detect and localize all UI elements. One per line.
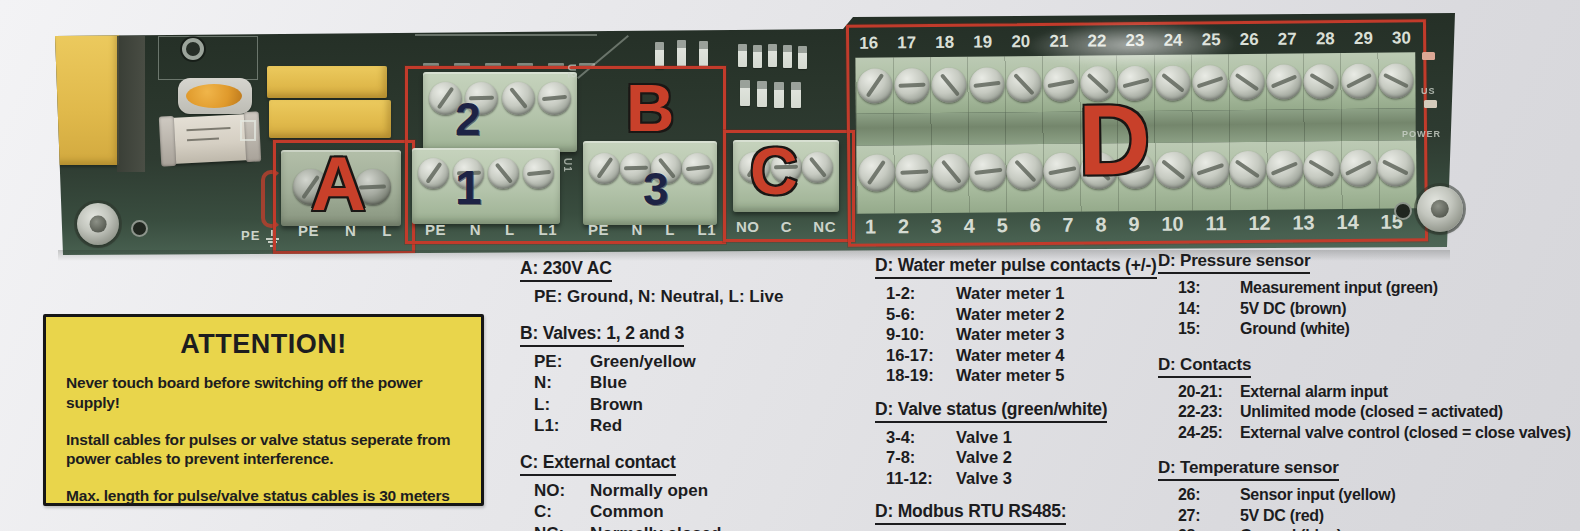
screw-terminal — [932, 67, 967, 102]
screw-terminal — [1229, 64, 1264, 99]
legend-section: D: Temperature sensor26:Sensor input (ye… — [1158, 458, 1580, 531]
attention-line-1: Never touch board before switching off t… — [66, 373, 461, 413]
legend-row-key: 11-12: — [886, 468, 956, 489]
screw-terminal — [682, 153, 713, 184]
screw-terminal — [1377, 149, 1414, 186]
smd-component — [677, 40, 686, 67]
fuse-marking — [187, 138, 219, 142]
legend-row: 1-2:Water meter 1 — [875, 283, 1167, 304]
legend-section-title: D: Valve status (green/white) — [875, 399, 1107, 423]
ref-designator-u2: U2 — [566, 64, 577, 79]
screw-terminal — [858, 154, 895, 191]
legend-row-value: Water meter 2 — [956, 304, 1065, 325]
legend-section: A: 230V ACPE: Ground, N: Neutral, L: Liv… — [520, 258, 870, 308]
legend-row-key: 3-4: — [886, 427, 956, 448]
legend-row: L1:Red — [520, 415, 870, 437]
legend-row: PE: Ground, N: Neutral, L: Live — [520, 286, 870, 308]
screw-terminal — [1341, 63, 1376, 98]
smd-component — [798, 46, 807, 69]
legend-section-title: C: External contact — [520, 452, 676, 476]
legend-section: D: Valve status (green/white)3-4:Valve 1… — [875, 399, 1167, 489]
fuse-marking — [186, 127, 230, 131]
legend-row-value: Ground (white) — [1240, 319, 1350, 340]
terminal-number: 4 — [964, 215, 975, 238]
terminal-number: 16 — [859, 33, 878, 53]
attention-line-2: Install cables for pulses or valve statu… — [66, 430, 461, 470]
terminal-label: C — [781, 218, 792, 235]
ref-designator-u1: U1 — [562, 158, 573, 173]
valve-block-number-3: 3 — [643, 166, 669, 212]
legend-row-key: NC: — [534, 523, 590, 531]
screw-terminal — [1267, 64, 1302, 99]
smd-component — [774, 82, 784, 108]
screw-terminal — [1043, 66, 1078, 101]
smd-component — [738, 44, 747, 67]
legend-row-value: Valve 2 — [956, 447, 1012, 468]
legend-row: PE:Green/yellow — [520, 351, 870, 373]
smd-component — [740, 80, 750, 106]
smd-component — [783, 45, 792, 68]
legend-row: 7-8:Valve 2 — [875, 447, 1167, 468]
modbus-led — [1424, 100, 1437, 108]
legend-row: N:Blue — [520, 372, 870, 394]
legend-row: 20-21:External alarm input — [1158, 382, 1580, 403]
legend-row-key: 20-21: — [1178, 382, 1240, 403]
terminal-number: 9 — [1128, 213, 1139, 236]
terminal-label: N — [345, 222, 356, 239]
relay-1 — [267, 66, 387, 98]
legend-row: 9-10:Water meter 3 — [875, 324, 1167, 345]
terminal-screws-b1 — [418, 156, 554, 190]
screw-terminal — [523, 158, 554, 189]
terminal-label: PE — [298, 222, 319, 239]
legend-row-value: Water meter 1 — [956, 283, 1065, 304]
smd-component — [791, 82, 801, 108]
legend-row-key: NO: — [534, 480, 590, 502]
screw-terminal — [1340, 149, 1377, 186]
legend-row-value: Brown — [590, 394, 643, 416]
legend-row: 16-17:Water meter 4 — [875, 345, 1167, 366]
legend-section-title: D: Contacts — [1158, 355, 1251, 378]
legend-row: NO:Normally open — [520, 480, 870, 502]
legend-row-key: 1-2: — [886, 283, 956, 304]
legend-row-value: Red — [590, 415, 622, 437]
legend-row-value: External alarm input — [1240, 382, 1388, 403]
legend-column-d-meters: D: Water meter pulse contacts (+/-)1-2:W… — [875, 255, 1167, 531]
legend-row-value: 5V DC (brown) — [1240, 299, 1346, 320]
legend-row-key: 5-6: — [886, 304, 956, 325]
section-label-d: D — [1078, 89, 1151, 190]
screw-terminal — [969, 153, 1006, 190]
terminal-number: 5 — [997, 214, 1008, 237]
screw-terminal — [1378, 63, 1413, 98]
legend-row-key: L: — [534, 394, 590, 416]
legend-row-value: Water meter 4 — [956, 345, 1065, 366]
legend-row-key: C: — [534, 501, 590, 523]
terminal-number: 17 — [897, 33, 916, 53]
silkscreen-box-icon — [240, 120, 256, 141]
legend-row-key: 26: — [1178, 485, 1240, 506]
legend-row: 28:Ground (blue) — [1158, 526, 1580, 531]
legend-row-value: Ground (blue) — [1240, 526, 1342, 531]
legend-row: L:Brown — [520, 394, 870, 416]
terminal-number: 28 — [1316, 29, 1335, 49]
status-led — [1422, 52, 1435, 60]
legend-row-value: Common — [590, 501, 664, 523]
section-d-outline: 161718192021222324252627282930 123456789… — [846, 19, 1428, 247]
legend-row-value: Valve 3 — [956, 468, 1012, 489]
screw-terminal — [802, 152, 833, 183]
component-shadow — [117, 36, 145, 172]
terminal-number: 11 — [1205, 212, 1226, 235]
screw-terminal — [1043, 152, 1080, 189]
silkscreen-outline — [158, 36, 258, 80]
legend-section: B: Valves: 1, 2 and 3PE:Green/yellowN:Bl… — [520, 323, 870, 437]
legend-column-d-sensors: D: Pressure sensor13:Measurement input (… — [1158, 251, 1580, 531]
legend-row-value: PE: Ground, N: Neutral, L: Live — [534, 286, 783, 308]
legend-row: 27:5V DC (red) — [1158, 506, 1580, 527]
legend-row-key: 28: — [1178, 526, 1240, 531]
smd-component — [757, 81, 767, 107]
small-hole — [131, 220, 148, 237]
legend-row-value: Measurement input (green) — [1240, 278, 1438, 299]
terminal-labels-a: PENL — [298, 222, 392, 239]
smd-component — [699, 41, 708, 68]
legend-row-key: L1: — [534, 415, 590, 437]
legend-row: 5-6:Water meter 2 — [875, 304, 1167, 325]
terminal-number: 18 — [935, 33, 954, 53]
screw-terminal — [1266, 150, 1303, 187]
legend-row-value: Normally open — [590, 480, 708, 502]
terminal-number: 19 — [973, 32, 992, 52]
legend-row-value: Water meter 3 — [956, 324, 1065, 345]
legend-row-key: 18-19: — [886, 365, 956, 386]
terminal-label: L — [505, 221, 515, 238]
terminal-number: 1 — [865, 216, 876, 239]
legend-row-key: 13: — [1178, 278, 1240, 299]
terminal-label: NC — [813, 218, 836, 235]
valve-block-number-1: 1 — [455, 164, 482, 212]
legend-row-key: 22-23: — [1178, 402, 1240, 423]
legend-section-title: B: Valves: 1, 2 and 3 — [520, 323, 684, 347]
legend-row-key: 7-8: — [886, 447, 956, 468]
screw-terminal — [1006, 152, 1043, 189]
mount-screw-left — [77, 203, 119, 245]
legend-row: 11-12:Valve 3 — [875, 468, 1167, 489]
screw-terminal — [1192, 151, 1229, 188]
terminal-labels-b3: PENLL1 — [588, 221, 716, 238]
legend-row-value: Sensor input (yellow) — [1240, 485, 1396, 506]
photo-glare — [1024, 20, 1239, 70]
legend-row-value: Blue — [590, 372, 627, 394]
legend-row: C:Common — [520, 501, 870, 523]
terminal-label: L1 — [538, 221, 557, 238]
screw-terminal — [1006, 66, 1041, 101]
legend-row-value: 5V DC (red) — [1240, 506, 1324, 527]
valve-block-number-2: 2 — [455, 96, 481, 142]
manual-page: PE A PENL 2 1 3 B PENLL1 PENLL1 U2 U1 — [0, 0, 1580, 531]
transformer-component — [55, 33, 119, 165]
attention-line-3: Max. length for pulse/valve status cable… — [66, 486, 461, 506]
section-label-b: B — [626, 74, 674, 141]
legend-row-key: 14: — [1178, 299, 1240, 320]
legend-row-value: Normally closed — [590, 523, 721, 531]
legend-row-key: N: — [534, 372, 590, 394]
smd-component — [655, 42, 664, 69]
legend-row: 18-19:Water meter 5 — [875, 365, 1167, 386]
legend-section-title: D: Water meter pulse contacts (+/-) — [875, 255, 1157, 279]
smd-component — [753, 45, 762, 68]
screw-terminal — [969, 67, 1004, 102]
attention-title: ATTENTION! — [66, 329, 461, 360]
legend-section: D: Water meter pulse contacts (+/-)1-2:W… — [875, 255, 1167, 386]
terminal-number: 13 — [1292, 211, 1314, 234]
terminal-labels-c: NOCNC — [736, 218, 836, 235]
terminal-label: L1 — [697, 221, 716, 238]
screw-terminal — [502, 82, 535, 115]
terminal-label: N — [632, 221, 643, 238]
screw-terminal — [418, 158, 449, 189]
terminal-label: L — [665, 221, 675, 238]
terminal-number: 14 — [1336, 211, 1358, 234]
screw-terminal — [1155, 151, 1192, 188]
legend-row-key: 15: — [1178, 319, 1240, 340]
terminal-number: 29 — [1354, 29, 1373, 49]
legend-row: 15:Ground (white) — [1158, 319, 1580, 340]
screw-terminal — [895, 67, 930, 102]
legend-row-key: 27: — [1178, 506, 1240, 527]
legend-row-key: 16-17: — [886, 345, 956, 366]
screw-terminal — [932, 153, 969, 190]
terminal-number: 7 — [1062, 214, 1073, 237]
terminal-screws-b2 — [429, 80, 571, 116]
legend-section-title: D: Modbus RTU RS485: — [875, 501, 1066, 525]
legend-row: 3-4:Valve 1 — [875, 427, 1167, 448]
screw-terminal — [1229, 150, 1266, 187]
screw-terminal — [857, 68, 892, 103]
smd-component — [768, 44, 777, 67]
capacitor — [186, 84, 242, 108]
terminal-number: 26 — [1240, 30, 1259, 50]
legend-section: D: Modbus RTU RS485:29: A30: B — [875, 501, 1167, 531]
legend-row-value: Green/yellow — [590, 351, 696, 373]
legend-row: 24-25:External valve control (closed = c… — [1158, 423, 1580, 444]
pe-label: PE — [241, 228, 260, 243]
terminal-number: 10 — [1161, 213, 1183, 236]
terminal-number: 3 — [931, 215, 942, 238]
legend-row-value: Valve 1 — [956, 427, 1012, 448]
legend-section-title: D: Pressure sensor — [1158, 251, 1310, 274]
legend-section: D: Contacts20-21:External alarm input22-… — [1158, 355, 1580, 444]
terminal-number: 30 — [1392, 28, 1411, 48]
screw-terminal — [1192, 65, 1227, 100]
screw-terminal — [488, 158, 519, 189]
attention-box: ATTENTION! Never touch board before swit… — [43, 314, 484, 506]
terminal-label: PE — [588, 221, 609, 238]
legend-section-title: A: 230V AC — [520, 258, 612, 282]
legend-row: 14:5V DC (brown) — [1158, 299, 1580, 320]
relay-2 — [269, 100, 391, 138]
screw-terminal — [538, 82, 571, 115]
terminal-label: PE — [425, 221, 446, 238]
legend-row-value: Water meter 5 — [956, 365, 1065, 386]
silkscreen-line — [415, 34, 597, 36]
small-hole-right — [1394, 202, 1412, 220]
legend-section-title: D: Temperature sensor — [1158, 458, 1339, 481]
legend-section: D: Pressure sensor13:Measurement input (… — [1158, 251, 1580, 340]
section-label-a: A — [311, 146, 366, 222]
screw-terminal — [895, 153, 932, 190]
terminal-labels-b1: PENLL1 — [425, 221, 557, 238]
d-bottom-numbers: 123456789101112131415 — [865, 210, 1403, 238]
legend-row-key: 24-25: — [1178, 423, 1240, 444]
legend-row: NC:Normally closed — [520, 523, 870, 531]
mount-screw-right — [1417, 186, 1463, 232]
power-silkscreen: POWER — [1402, 129, 1441, 139]
legend-row: 13:Measurement input (green) — [1158, 278, 1580, 299]
terminal-number: 8 — [1095, 213, 1106, 236]
terminal-label: L — [382, 222, 392, 239]
terminal-number: 12 — [1248, 212, 1270, 235]
terminal-number: 2 — [898, 215, 909, 238]
legend-row-key: 9-10: — [886, 324, 956, 345]
status-silkscreen: US — [1421, 86, 1436, 96]
legend-row: 26:Sensor input (yellow) — [1158, 485, 1580, 506]
legend-column-abc: A: 230V ACPE: Ground, N: Neutral, L: Liv… — [520, 258, 870, 531]
terminal-number: 27 — [1278, 29, 1297, 49]
mount-hole — [182, 38, 204, 60]
section-label-c: C — [750, 138, 798, 204]
legend-row: 22-23:Unlimited mode (closed = activated… — [1158, 402, 1580, 423]
terminal-number: 6 — [1029, 214, 1040, 237]
terminal-label: N — [470, 221, 481, 238]
legend-row-value: Unlimited mode (closed = activated) — [1240, 402, 1503, 423]
screw-terminal — [1155, 65, 1190, 100]
screw-terminal — [1303, 150, 1340, 187]
legend-section: C: External contactNO:Normally openC:Com… — [520, 452, 870, 531]
pcb-board: PE A PENL 2 1 3 B PENLL1 PENLL1 U2 U1 — [55, 10, 1457, 258]
screw-terminal — [589, 153, 620, 184]
terminal-label: NO — [736, 218, 760, 235]
screw-terminal — [1304, 64, 1339, 99]
legend-row-value: External valve control (closed = close v… — [1240, 423, 1571, 444]
legend-row-key: PE: — [534, 351, 590, 373]
